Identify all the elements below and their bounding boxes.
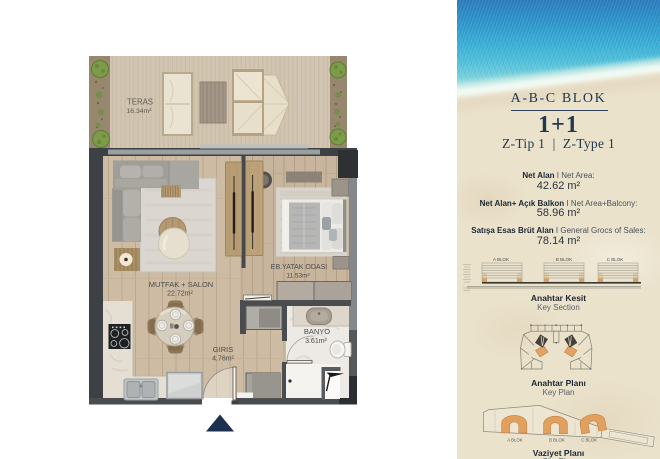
svg-text:3.61m²: 3.61m² [305, 338, 327, 345]
svg-text:BANYO: BANYO [304, 327, 330, 336]
svg-text:MUTFAK + SALON: MUTFAK + SALON [149, 280, 213, 289]
svg-text:A BLOK: A BLOK [493, 257, 509, 262]
svg-text:22.72m²: 22.72m² [167, 291, 193, 298]
svg-text:C BLOK: C BLOK [607, 257, 624, 262]
svg-text:EB.YATAK ODASI: EB.YATAK ODASI [271, 264, 327, 271]
svg-text:16.34m²: 16.34m² [127, 108, 153, 115]
svg-text:B BLOK: B BLOK [556, 257, 572, 262]
svg-text:B BLOK: B BLOK [549, 438, 565, 443]
svg-text:TERAS: TERAS [127, 98, 153, 107]
svg-text:11.53m²: 11.53m² [286, 273, 310, 280]
svg-text:A BLOK: A BLOK [507, 438, 522, 443]
svg-text:4.76m²: 4.76m² [212, 356, 234, 363]
svg-text:C BLOK: C BLOK [581, 438, 597, 443]
svg-text:GIRIS: GIRIS [213, 345, 233, 354]
